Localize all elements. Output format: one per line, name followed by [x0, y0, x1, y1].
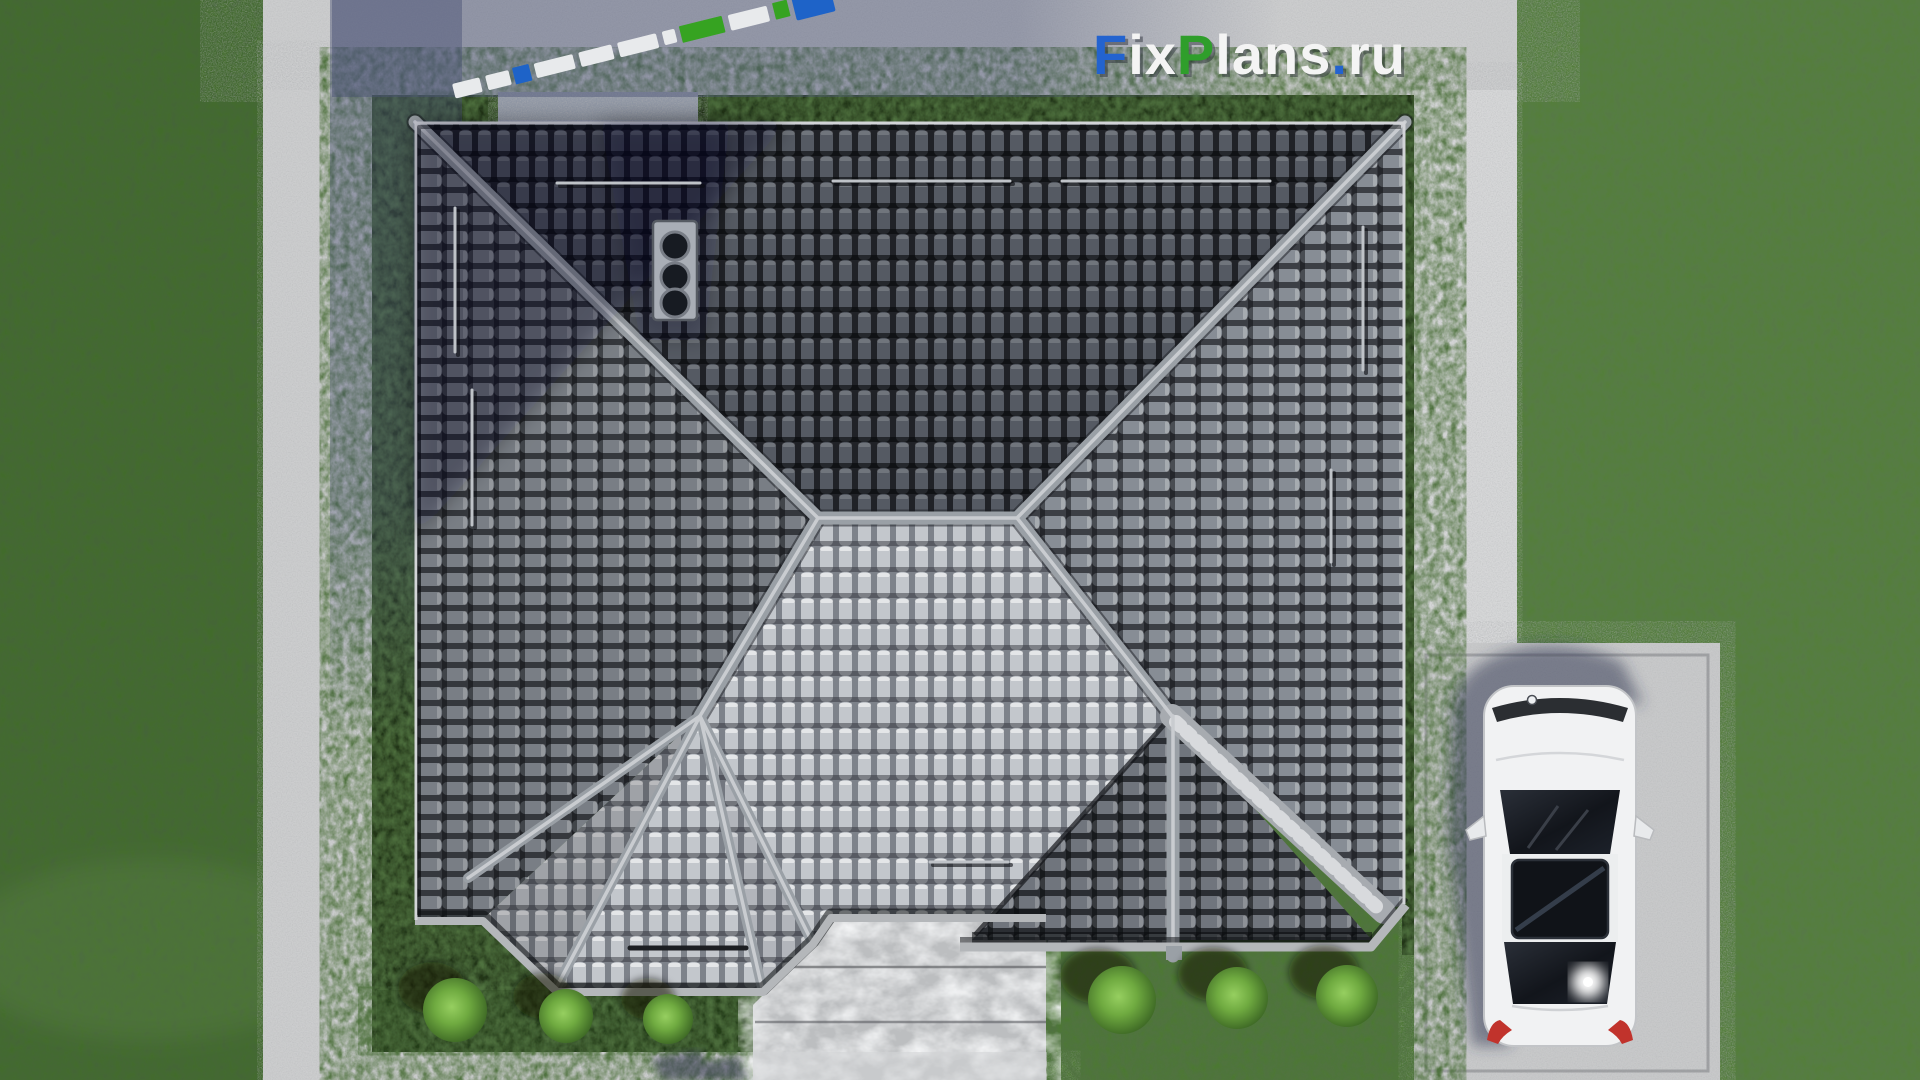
site-plan-render: FixPlans.ru FixPlans.ru: [0, 0, 1920, 1080]
chimney-flue: [661, 263, 689, 291]
chimney-flue: [661, 232, 689, 260]
sun-glint-core: [1583, 977, 1593, 987]
car: [1448, 645, 1654, 1046]
car-hood-emblem: [1528, 696, 1537, 705]
watermark-logo: FixPlans.ru FixPlans.ru: [1093, 23, 1409, 89]
chimney: [653, 221, 697, 320]
scene-canvas: FixPlans.ru FixPlans.ru: [0, 0, 1920, 1080]
chimney-flue: [661, 289, 689, 317]
wing-ridge-end: [1166, 946, 1182, 960]
path-right: [1412, 90, 1517, 650]
house-roof: [413, 120, 1406, 992]
watermark-text: FixPlans.ru: [1093, 23, 1406, 86]
